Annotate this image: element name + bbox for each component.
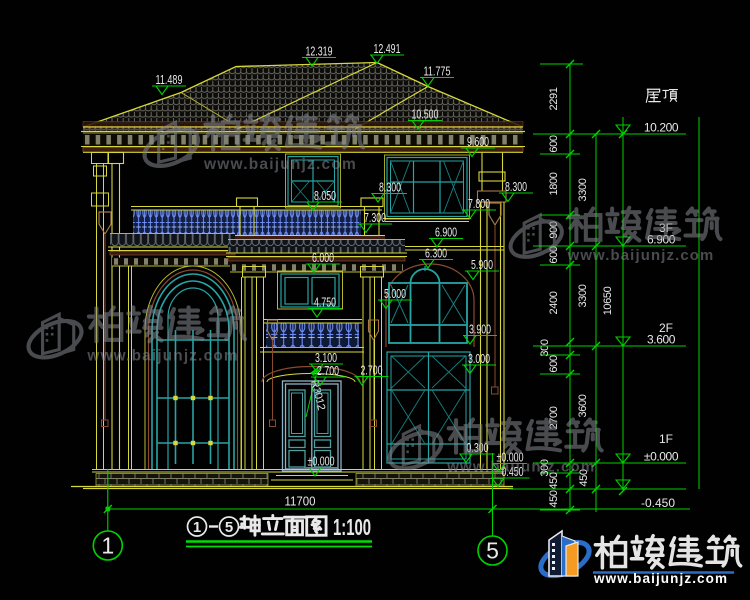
svg-text:10650: 10650 [602, 286, 614, 315]
svg-text:3600: 3600 [577, 394, 589, 417]
svg-text:3.000: 3.000 [468, 352, 490, 366]
svg-text:11700: 11700 [285, 495, 316, 509]
svg-text:600: 600 [548, 135, 560, 152]
svg-text:600: 600 [548, 355, 560, 372]
svg-text:5.900: 5.900 [471, 258, 493, 272]
svg-text:www.baijunjz.com: www.baijunjz.com [567, 248, 715, 264]
svg-text:www.baijunjz.com: www.baijunjz.com [203, 156, 357, 173]
svg-text:300: 300 [539, 339, 551, 356]
svg-text:2F: 2F [659, 321, 673, 335]
svg-text:11.775: 11.775 [424, 65, 451, 79]
svg-text:8.050: 8.050 [314, 189, 336, 203]
svg-text:www.baijunjz.com: www.baijunjz.com [86, 347, 238, 364]
svg-text:1: 1 [193, 519, 201, 536]
svg-text:3.900: 3.900 [469, 323, 491, 337]
svg-text:±0.000: ±0.000 [644, 450, 679, 464]
svg-text:7.300: 7.300 [364, 211, 386, 225]
svg-text:2291: 2291 [548, 87, 560, 110]
svg-text:12.491: 12.491 [374, 42, 401, 56]
svg-text:10.200: 10.200 [644, 121, 679, 135]
svg-text:450: 450 [548, 490, 560, 507]
svg-text:2.700: 2.700 [317, 364, 339, 378]
svg-text:±0.000: ±0.000 [308, 455, 335, 469]
svg-text:1800: 1800 [548, 172, 560, 195]
svg-text:3300: 3300 [577, 284, 589, 307]
svg-text:11.489: 11.489 [156, 73, 183, 87]
svg-text:1:100: 1:100 [333, 514, 371, 540]
svg-text:6.000: 6.000 [312, 251, 334, 265]
svg-text:8.300: 8.300 [379, 181, 401, 195]
svg-text:1F: 1F [659, 432, 673, 446]
svg-text:8.300: 8.300 [505, 180, 527, 194]
svg-text:www.baijunjz.com: www.baijunjz.com [593, 571, 728, 586]
svg-text:12.319: 12.319 [306, 45, 333, 59]
svg-text:2700: 2700 [548, 406, 560, 429]
svg-text:5: 5 [225, 519, 233, 536]
svg-text:4.750: 4.750 [314, 296, 336, 310]
svg-text:3300: 3300 [577, 178, 589, 201]
svg-text:7.800: 7.800 [468, 197, 490, 211]
svg-text:www.baijunjz.com: www.baijunjz.com [446, 458, 595, 475]
svg-text:6.300: 6.300 [425, 247, 447, 261]
svg-text:3.100: 3.100 [315, 351, 337, 365]
svg-text:10.500: 10.500 [412, 108, 439, 122]
svg-text:-0.450: -0.450 [641, 496, 675, 510]
svg-text:9.600: 9.600 [467, 135, 489, 149]
svg-text:1: 1 [101, 533, 114, 559]
svg-text:2400: 2400 [548, 291, 560, 314]
svg-text:5.000: 5.000 [384, 287, 406, 301]
svg-text:5: 5 [486, 538, 499, 564]
svg-text:2.700: 2.700 [361, 364, 383, 378]
svg-text:6.900: 6.900 [435, 226, 457, 240]
